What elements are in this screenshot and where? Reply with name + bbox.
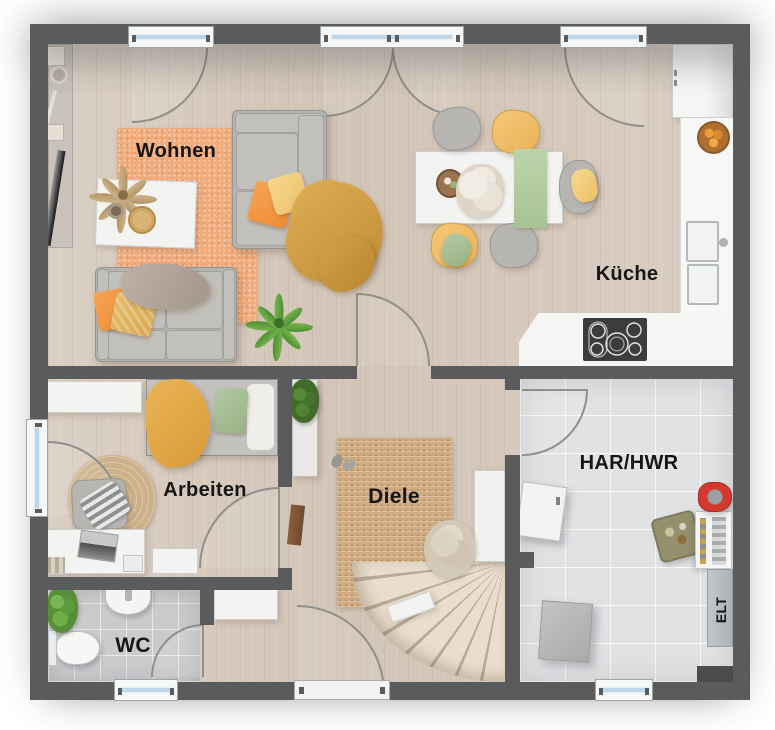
tall-cabinet [672,44,733,118]
wall-right [733,24,750,700]
room-label-diele: Diele [344,485,444,509]
gold-tray [128,206,156,234]
decor-bowl [50,66,68,84]
office-shelf [44,381,142,413]
wall-wc-right [200,590,214,625]
table-runner [514,149,547,228]
wc-plant [46,585,78,633]
window-wc [114,679,178,701]
har-wall-pillar [520,552,534,568]
door-leaf-living-hall [356,293,358,366]
wc-faucet [125,589,132,601]
table-vase [108,203,124,219]
staircase-balustrade [474,470,505,562]
office-sideboard [152,548,198,574]
door-leaf-wc [202,624,204,677]
washer-control [556,497,560,505]
storage-box [538,600,593,662]
daybed-pillow-white [246,383,275,451]
palm-plant [245,288,313,358]
book-stack-2 [46,124,64,141]
room-label-arbeiten: Arbeiten [145,479,265,502]
cabinet-handle-2 [674,80,677,86]
elt-label: ELT [713,571,729,649]
kitchen-faucet [719,238,728,247]
window-har [595,679,653,701]
cooktop [583,318,647,361]
room-label-wohnen: Wohnen [120,140,232,163]
window-top-2 [320,26,464,48]
window-top-1 [128,26,214,48]
wall-mid-left [48,366,357,379]
daybed-pillow-green [212,387,249,435]
fruit-bowl [697,121,730,154]
room-label-wc: WC [93,634,173,658]
dried-grass-plant [424,520,476,578]
tool-panel [695,511,732,569]
hall-bench [214,586,278,620]
entrance-door [294,680,390,700]
sink-basin-1 [686,221,719,262]
room-label-kueche: Küche [577,263,677,286]
sink-basin-2 [687,264,719,305]
wall-office-right-upper [278,379,292,487]
wardrobe-plant [289,379,319,423]
wall-har-left [505,455,520,682]
window-office-left [26,419,48,517]
room-label-har-hwr: HAR/HWR [559,452,699,475]
desk-boxes [123,555,143,572]
wall-har-stub [505,379,520,390]
elt-panel: ELT [707,569,733,647]
door-leaf-har [522,389,588,391]
washing-machine [515,481,567,542]
floor-plan: ELT Wohnen Küche Arbeiten Diele WC HAR/H… [0,0,775,730]
red-tool-caddy [698,482,732,512]
door-leaf-office [278,487,280,568]
window-top-3 [560,26,647,48]
har-recess [697,666,733,682]
laptop [77,529,119,562]
wall-office-wc [48,577,292,590]
cabinet-handle-1 [674,70,677,76]
wall-left [30,24,48,700]
wall-mid-right [431,366,733,379]
